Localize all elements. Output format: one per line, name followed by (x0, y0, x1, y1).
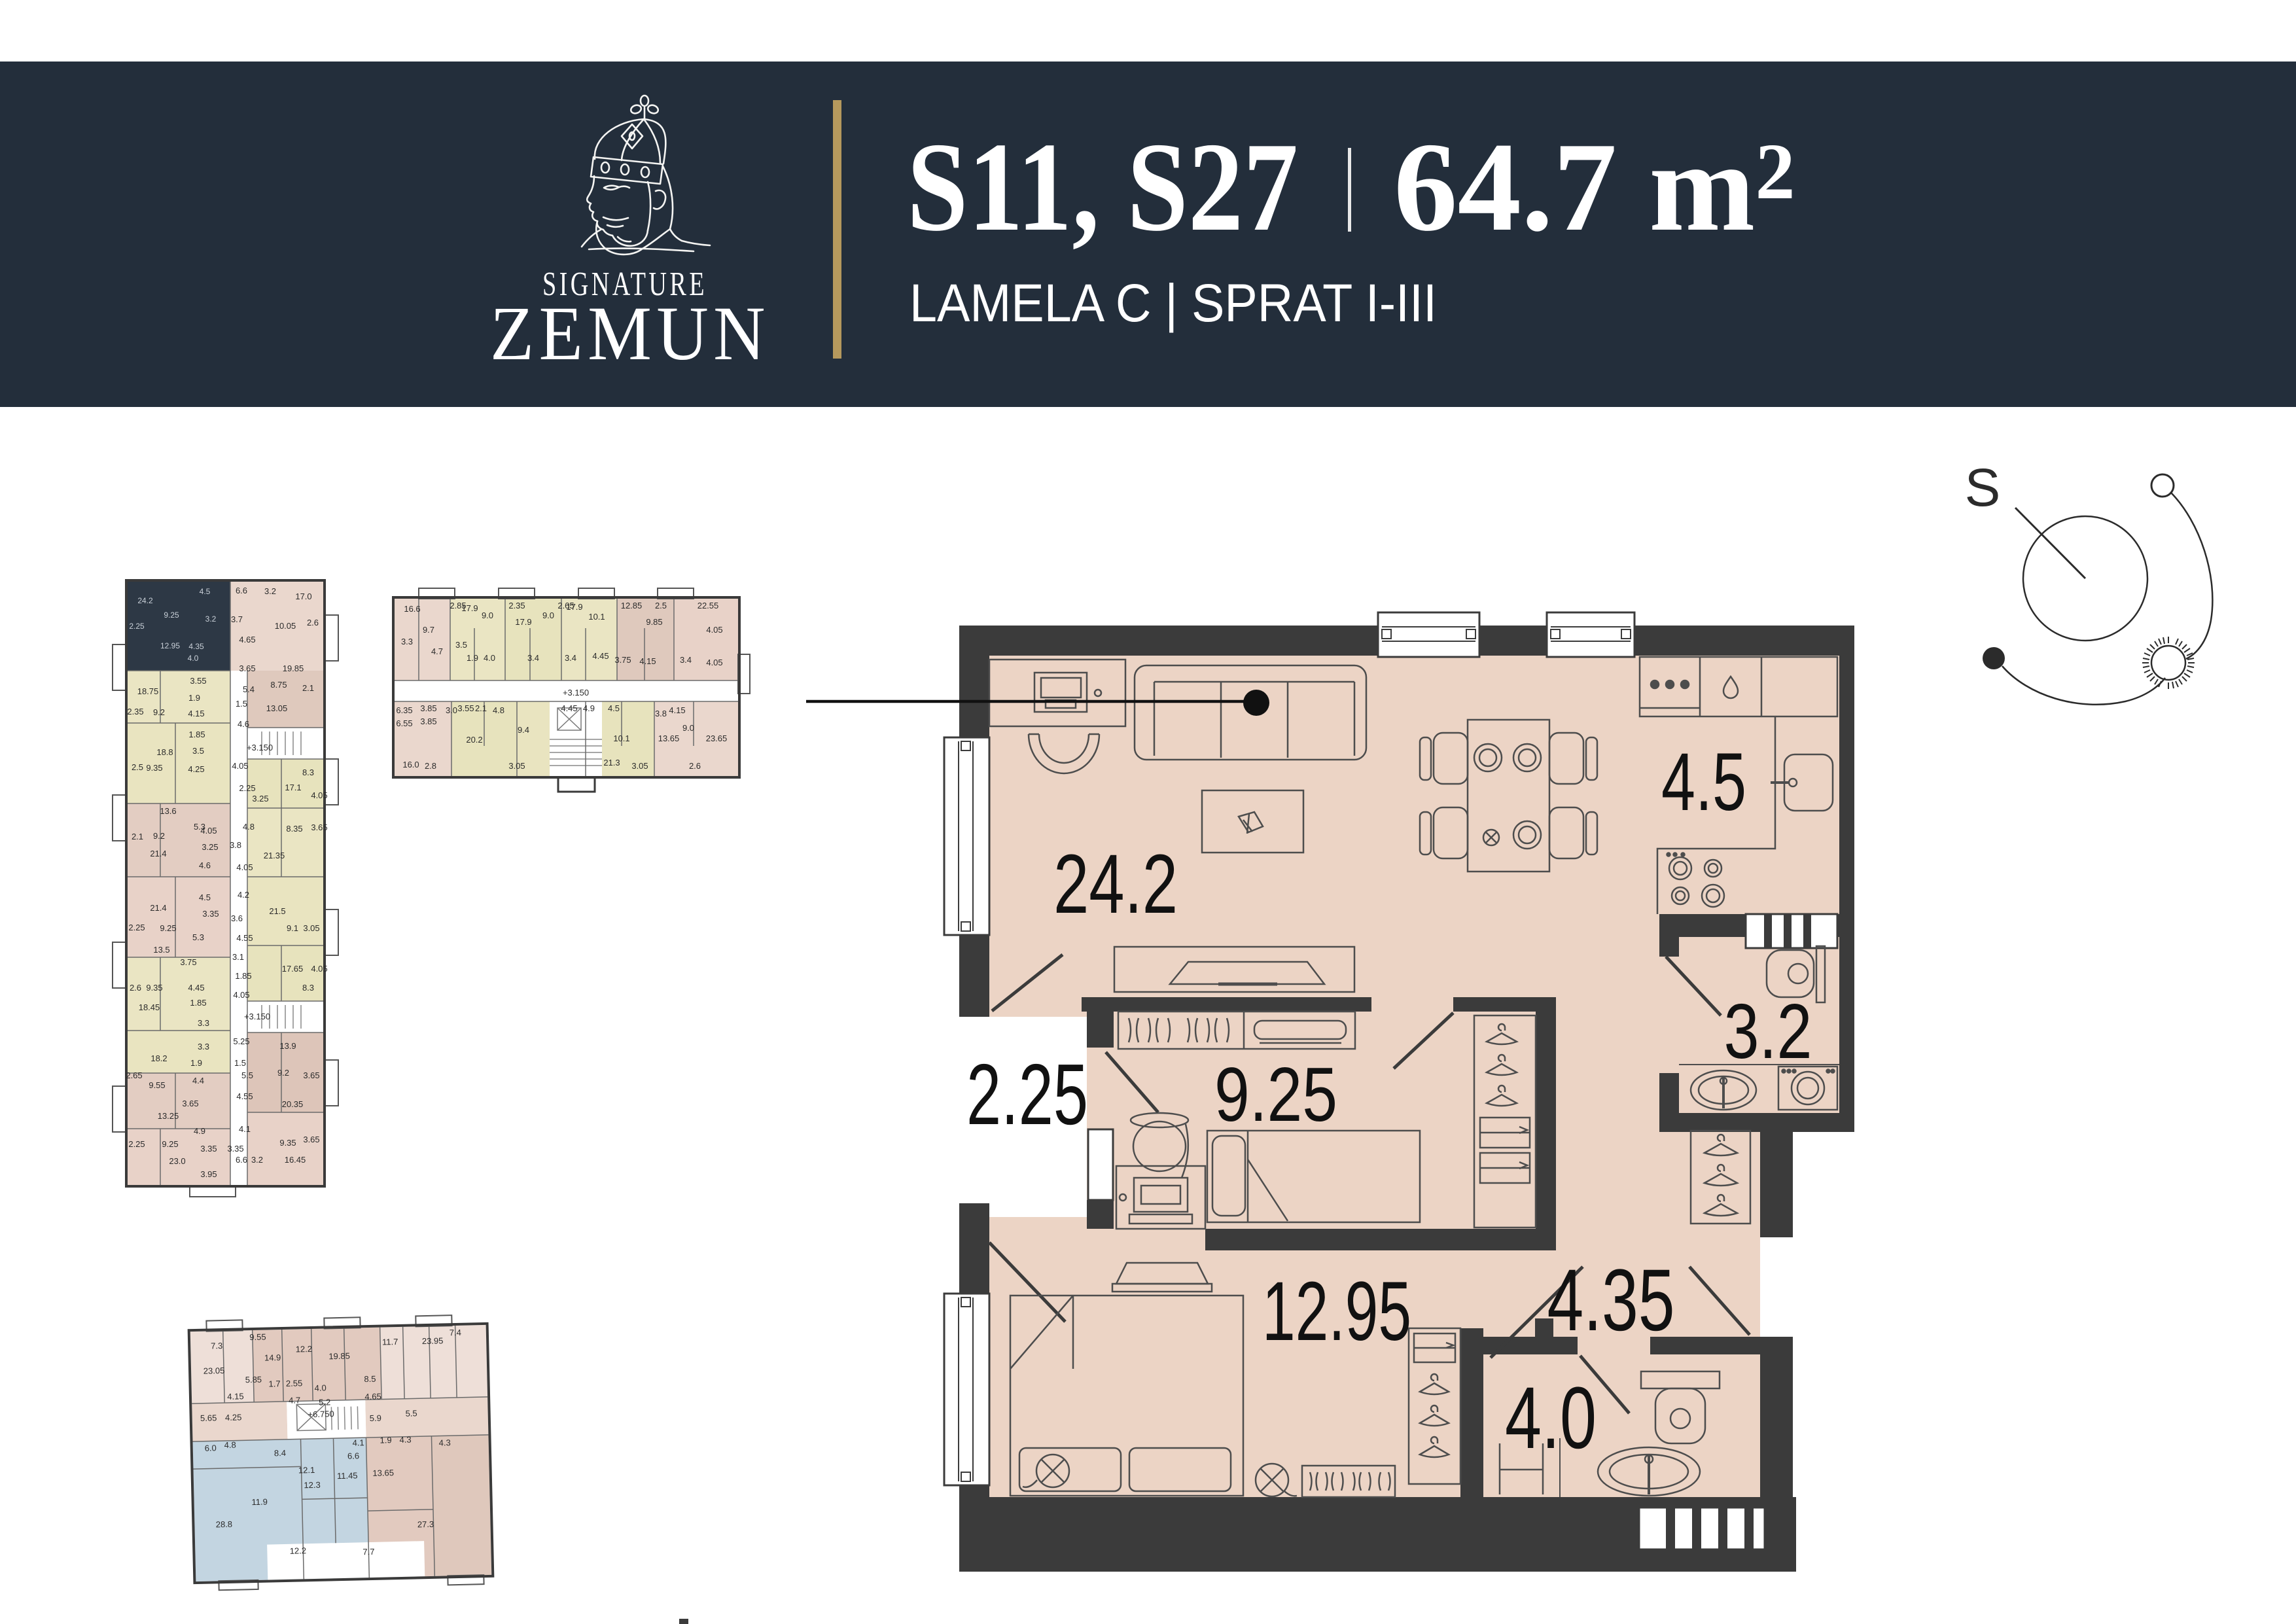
svg-text:6.0: 6.0 (205, 1443, 217, 1453)
svg-text:2.25: 2.25 (966, 1046, 1088, 1142)
svg-text:4.55: 4.55 (236, 1091, 253, 1101)
svg-text:1.85: 1.85 (188, 730, 205, 739)
svg-text:3.85: 3.85 (420, 716, 436, 726)
svg-text:4.7: 4.7 (431, 646, 443, 656)
svg-text:7.7: 7.7 (362, 1547, 374, 1557)
svg-text:19.85: 19.85 (328, 1351, 350, 1362)
svg-text:3.65: 3.65 (182, 1099, 198, 1108)
svg-text:24.2: 24.2 (137, 596, 153, 605)
svg-text:8.75: 8.75 (270, 680, 287, 690)
svg-text:4.9: 4.9 (583, 703, 595, 713)
svg-text:3.65: 3.65 (303, 1070, 319, 1080)
svg-text:S: S (1965, 458, 2001, 518)
svg-text:S11, S27: S11, S27 (907, 116, 1298, 258)
svg-text:9.2: 9.2 (153, 707, 165, 717)
svg-text:13.65: 13.65 (372, 1468, 394, 1478)
svg-text:1.9: 1.9 (188, 693, 200, 703)
svg-text:4.8: 4.8 (224, 1440, 236, 1450)
svg-text:2.5: 2.5 (655, 601, 667, 610)
svg-text:10.05: 10.05 (275, 621, 296, 631)
svg-text:3.6: 3.6 (231, 913, 243, 923)
svg-text:+3.150: +3.150 (244, 1012, 270, 1021)
svg-text:4.6: 4.6 (238, 719, 249, 729)
svg-text:18.2: 18.2 (150, 1053, 167, 1063)
svg-text:9.25: 9.25 (1214, 1051, 1337, 1137)
svg-text:4.9: 4.9 (194, 1126, 205, 1136)
svg-text:9.0: 9.0 (682, 723, 694, 733)
svg-text:2.1: 2.1 (475, 703, 487, 713)
svg-text:2.25: 2.25 (128, 923, 145, 932)
svg-text:4.55: 4.55 (236, 933, 253, 943)
svg-text:4.15: 4.15 (188, 709, 204, 718)
svg-text:2.1: 2.1 (302, 683, 314, 693)
svg-text:12.2: 12.2 (296, 1344, 313, 1354)
svg-text:3.05: 3.05 (508, 761, 525, 771)
svg-text:3.55: 3.55 (457, 703, 474, 713)
svg-text:7.4: 7.4 (450, 1328, 461, 1337)
svg-text:3.8: 3.8 (655, 709, 667, 718)
svg-text:12.95: 12.95 (1262, 1265, 1411, 1358)
svg-text:12.3: 12.3 (304, 1480, 321, 1491)
svg-text:3.25: 3.25 (202, 842, 218, 852)
svg-text:3.85: 3.85 (420, 703, 436, 713)
svg-text:8.3: 8.3 (302, 983, 314, 993)
svg-text:18.8: 18.8 (156, 747, 173, 757)
svg-text:4.1: 4.1 (239, 1124, 251, 1134)
svg-text:+3.150: +3.150 (247, 743, 273, 752)
svg-text:2.6: 2.6 (307, 618, 319, 627)
svg-text:1.85: 1.85 (235, 971, 251, 981)
svg-text:3.05: 3.05 (631, 761, 648, 771)
svg-text:20.2: 20.2 (466, 735, 482, 745)
svg-text:64.7 m2: 64.7 m2 (1394, 116, 1795, 258)
svg-text:3.8: 3.8 (230, 840, 241, 850)
svg-text:3.75: 3.75 (180, 957, 196, 967)
svg-text:6.6: 6.6 (236, 586, 247, 595)
svg-text:4.05: 4.05 (311, 964, 327, 974)
svg-text:11.9: 11.9 (251, 1497, 268, 1508)
svg-text:3.7: 3.7 (231, 614, 243, 624)
svg-text:4.25: 4.25 (188, 764, 204, 774)
svg-text:3.2: 3.2 (251, 1155, 263, 1165)
svg-text:+3.150: +3.150 (563, 688, 589, 697)
svg-text:8.4: 8.4 (274, 1448, 286, 1458)
svg-text:4.0: 4.0 (484, 653, 495, 663)
svg-text:4.65: 4.65 (364, 1392, 381, 1402)
svg-text:5.2: 5.2 (319, 1397, 330, 1407)
svg-text:9.85: 9.85 (646, 617, 662, 627)
svg-text:+6.750: +6.750 (308, 1409, 334, 1419)
svg-text:5.9: 5.9 (370, 1413, 381, 1423)
svg-text:21.35: 21.35 (264, 851, 285, 860)
svg-text:3.55: 3.55 (190, 676, 206, 686)
svg-text:4.35: 4.35 (1547, 1252, 1675, 1349)
svg-text:9.2: 9.2 (153, 831, 165, 841)
svg-text:13.25: 13.25 (158, 1111, 179, 1121)
svg-text:13.65: 13.65 (658, 733, 680, 743)
svg-text:4.3: 4.3 (399, 1435, 411, 1445)
svg-text:4.8: 4.8 (243, 822, 255, 832)
svg-text:4.4: 4.4 (192, 1076, 204, 1086)
svg-text:9.4: 9.4 (518, 725, 529, 735)
svg-text:1.7: 1.7 (268, 1379, 280, 1388)
svg-text:9.25: 9.25 (164, 610, 179, 620)
svg-text:4.05: 4.05 (236, 862, 253, 872)
svg-text:3.5: 3.5 (455, 640, 467, 650)
svg-text:13.5: 13.5 (153, 945, 169, 955)
svg-text:10.1: 10.1 (588, 612, 605, 622)
svg-text:11.7: 11.7 (382, 1337, 398, 1347)
svg-text:4.0: 4.0 (1505, 1369, 1597, 1467)
svg-text:4.5: 4.5 (200, 587, 211, 596)
svg-text:22.55: 22.55 (698, 601, 719, 610)
svg-text:3.0: 3.0 (446, 705, 457, 715)
svg-text:16.0: 16.0 (402, 760, 419, 769)
svg-text:11.45: 11.45 (337, 1470, 358, 1481)
svg-text:4.2: 4.2 (238, 890, 249, 900)
svg-text:4.15: 4.15 (227, 1391, 244, 1402)
svg-text:9.35: 9.35 (146, 983, 162, 993)
svg-text:3.3: 3.3 (401, 637, 413, 646)
svg-text:2.1: 2.1 (132, 832, 143, 841)
svg-text:12.1: 12.1 (298, 1465, 315, 1475)
svg-text:5.3: 5.3 (192, 932, 204, 942)
svg-text:6.6: 6.6 (236, 1155, 247, 1165)
svg-text:12.85: 12.85 (621, 601, 643, 610)
svg-text:2.35: 2.35 (127, 707, 143, 716)
svg-text:21.4: 21.4 (150, 849, 166, 858)
svg-text:16.45: 16.45 (285, 1155, 306, 1165)
svg-text:9.0: 9.0 (482, 610, 493, 620)
svg-text:2.25: 2.25 (128, 1139, 145, 1149)
svg-text:9.1: 9.1 (287, 923, 298, 933)
svg-text:27.3: 27.3 (417, 1519, 434, 1530)
svg-text:5.4: 5.4 (243, 684, 255, 694)
svg-text:1.9: 1.9 (190, 1058, 202, 1068)
svg-text:3.35: 3.35 (227, 1144, 243, 1154)
svg-text:4.05: 4.05 (233, 990, 249, 1000)
svg-text:12.2: 12.2 (290, 1545, 307, 1556)
svg-text:5.5: 5.5 (241, 1070, 253, 1080)
svg-text:17.1: 17.1 (285, 783, 301, 792)
svg-text:12.95: 12.95 (160, 641, 180, 650)
svg-text:8.3: 8.3 (302, 768, 314, 777)
svg-text:17.9: 17.9 (515, 617, 531, 627)
svg-text:9.25: 9.25 (162, 1139, 178, 1149)
svg-text:9.35: 9.35 (279, 1138, 296, 1148)
svg-text:1.5: 1.5 (236, 699, 247, 709)
svg-text:7.3: 7.3 (211, 1341, 222, 1350)
svg-text:4.15: 4.15 (669, 705, 685, 715)
svg-text:16.6: 16.6 (404, 604, 420, 614)
svg-text:9.55: 9.55 (249, 1332, 266, 1343)
svg-text:14.9: 14.9 (264, 1352, 281, 1363)
svg-text:21.3: 21.3 (603, 758, 620, 768)
svg-text:1.85: 1.85 (190, 998, 206, 1008)
svg-text:5.65: 5.65 (200, 1413, 217, 1423)
svg-text:9.0: 9.0 (542, 610, 554, 620)
svg-text:4.45: 4.45 (561, 703, 577, 713)
svg-text:21.4: 21.4 (150, 903, 166, 913)
svg-text:13.6: 13.6 (160, 806, 176, 816)
svg-text:21.5: 21.5 (269, 906, 285, 916)
svg-text:8.5: 8.5 (364, 1374, 376, 1384)
svg-text:3.05: 3.05 (303, 923, 319, 933)
svg-text:2.65: 2.65 (126, 1070, 142, 1080)
svg-text:LAMELA C | SPRAT I-III: LAMELA C | SPRAT I-III (910, 274, 1437, 333)
svg-text:3.3: 3.3 (198, 1018, 209, 1028)
svg-text:9.7: 9.7 (423, 625, 434, 635)
svg-text:4.3: 4.3 (438, 1438, 450, 1447)
svg-text:4.5: 4.5 (608, 703, 620, 713)
svg-text:3.35: 3.35 (202, 909, 219, 919)
svg-text:3.25: 3.25 (252, 794, 268, 803)
svg-text:2.25: 2.25 (129, 622, 145, 631)
svg-text:4.0: 4.0 (315, 1383, 327, 1392)
svg-text:9.55: 9.55 (149, 1080, 165, 1090)
svg-text:4.45: 4.45 (188, 983, 204, 993)
svg-text:3.5: 3.5 (192, 746, 204, 756)
svg-text:13.9: 13.9 (279, 1041, 296, 1051)
svg-text:5.25: 5.25 (233, 1036, 249, 1046)
svg-text:4.8: 4.8 (493, 705, 504, 715)
svg-text:19.85: 19.85 (283, 663, 304, 673)
svg-text:2.8: 2.8 (425, 761, 436, 771)
svg-text:24.2: 24.2 (1053, 838, 1178, 931)
svg-text:1.9: 1.9 (380, 1435, 391, 1445)
svg-text:2.5: 2.5 (132, 762, 143, 772)
svg-text:23.0: 23.0 (169, 1156, 185, 1166)
svg-text:23.95: 23.95 (422, 1335, 444, 1346)
svg-text:8.35: 8.35 (286, 824, 302, 834)
svg-text:4.05: 4.05 (200, 826, 217, 836)
svg-text:3.95: 3.95 (200, 1169, 217, 1179)
svg-text:3.2: 3.2 (1724, 988, 1812, 1075)
svg-text:5.85: 5.85 (245, 1375, 262, 1385)
svg-text:3.4: 3.4 (565, 653, 576, 663)
svg-text:3.1: 3.1 (232, 952, 244, 962)
svg-text:2.25: 2.25 (239, 783, 255, 793)
svg-text:17.65: 17.65 (282, 964, 304, 974)
svg-text:2.35: 2.35 (508, 601, 525, 610)
svg-text:17.9: 17.9 (461, 603, 478, 613)
svg-text:3.65: 3.65 (239, 663, 255, 673)
svg-text:10.1: 10.1 (613, 733, 629, 743)
svg-text:9.25: 9.25 (160, 923, 176, 933)
svg-text:3.65: 3.65 (303, 1135, 319, 1144)
svg-text:3.3: 3.3 (198, 1042, 209, 1051)
svg-text:4.05: 4.05 (232, 761, 248, 771)
svg-text:4.7: 4.7 (289, 1395, 300, 1405)
svg-text:4.35: 4.35 (188, 642, 204, 651)
svg-text:4.1: 4.1 (352, 1438, 364, 1447)
svg-text:4.5: 4.5 (1661, 737, 1746, 828)
svg-text:3.2: 3.2 (205, 614, 217, 624)
svg-text:4.05: 4.05 (706, 625, 722, 635)
svg-text:28.8: 28.8 (216, 1519, 233, 1530)
svg-text:5.5: 5.5 (405, 1408, 417, 1418)
svg-text:4.15: 4.15 (639, 656, 656, 666)
svg-text:17.0: 17.0 (295, 591, 311, 601)
svg-text:4.65: 4.65 (239, 635, 255, 644)
svg-text:6.35: 6.35 (396, 705, 412, 715)
svg-text:2.65: 2.65 (557, 601, 574, 610)
svg-text:4.25: 4.25 (225, 1412, 242, 1422)
svg-text:18.75: 18.75 (137, 686, 159, 696)
svg-text:4.45: 4.45 (592, 651, 609, 661)
svg-text:20.35: 20.35 (282, 1099, 304, 1109)
svg-text:13.05: 13.05 (266, 703, 288, 713)
svg-text:2.55: 2.55 (286, 1378, 303, 1388)
svg-text:6.6: 6.6 (347, 1451, 359, 1460)
svg-text:3.2: 3.2 (264, 586, 276, 596)
svg-text:3.75: 3.75 (614, 655, 631, 665)
svg-text:9.35: 9.35 (146, 763, 162, 773)
svg-text:6.55: 6.55 (396, 718, 412, 728)
svg-text:4.6: 4.6 (199, 860, 211, 870)
svg-text:1.5: 1.5 (234, 1058, 246, 1068)
svg-text:23.65: 23.65 (706, 733, 728, 743)
svg-text:23.05: 23.05 (203, 1366, 225, 1376)
svg-text:3.35: 3.35 (200, 1144, 217, 1154)
svg-text:1.9: 1.9 (467, 653, 478, 663)
svg-text:9.2: 9.2 (277, 1068, 289, 1078)
svg-text:4.0: 4.0 (188, 654, 199, 663)
svg-text:3.65: 3.65 (311, 822, 327, 832)
svg-text:4.5: 4.5 (199, 892, 211, 902)
svg-text:4.05: 4.05 (311, 790, 327, 800)
svg-text:2.6: 2.6 (130, 983, 141, 993)
svg-text:4.05: 4.05 (706, 658, 722, 667)
svg-text:3.4: 3.4 (527, 653, 539, 663)
svg-text:3.4: 3.4 (680, 655, 692, 665)
svg-text:18.45: 18.45 (139, 1002, 160, 1012)
svg-text:2.6: 2.6 (689, 761, 701, 771)
svg-text:ZEMUN: ZEMUN (490, 291, 770, 376)
